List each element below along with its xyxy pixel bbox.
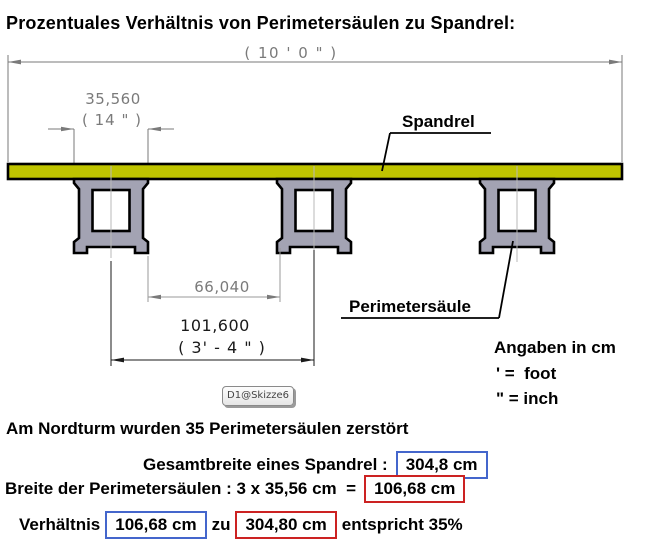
note-column-width-row: Breite der Perimetersäulen : 3 x 35,56 c… bbox=[5, 475, 465, 503]
dimension-spacing-imperial-text: ( 3' - 4 " ) bbox=[178, 338, 266, 357]
note-destroyed-columns: Am Nordturm wurden 35 Perimetersäulen ze… bbox=[6, 419, 408, 439]
column-width-value-box: 106,68 cm bbox=[364, 475, 465, 503]
dimension-overall-text: ( 10 ' 0 " ) bbox=[244, 44, 337, 62]
arrow-right-icon bbox=[61, 127, 74, 131]
spandrel-bar bbox=[8, 164, 622, 179]
ratio-suffix: entspricht 35% bbox=[342, 515, 463, 535]
note-ratio-row: Verhältnis 106,68 cm zu 304,80 cm entspr… bbox=[19, 511, 463, 539]
legend-foot: ' = foot bbox=[496, 364, 556, 384]
arrow-right-icon bbox=[609, 60, 622, 65]
dimension-spacing-text: 101,600 bbox=[180, 316, 250, 335]
sketch-dimension-tag: D1@Skizze6 bbox=[222, 386, 294, 406]
spandrel-column-drawing: ( 10 ' 0 " ) 35,560 ( 14 " ) bbox=[0, 0, 650, 380]
arrow-left-icon bbox=[148, 295, 161, 299]
ratio-mid: zu bbox=[212, 515, 231, 535]
technical-diagram-page: Prozentuales Verhältnis von Perimetersäu… bbox=[0, 0, 650, 548]
arrow-right-icon bbox=[267, 295, 280, 299]
spandrel-width-label: Gesamtbreite eines Spandrel : bbox=[143, 455, 388, 475]
dimension-gap-text: 66,040 bbox=[194, 278, 250, 296]
legend-inch: " = inch bbox=[496, 389, 558, 409]
column-centerlines bbox=[111, 166, 517, 262]
arrow-right-icon bbox=[301, 358, 314, 363]
ratio-value1-box: 106,68 cm bbox=[105, 511, 206, 539]
arrow-left-icon bbox=[111, 358, 124, 363]
arrow-left-icon bbox=[148, 127, 161, 131]
dimension-overall bbox=[8, 55, 622, 162]
dimension-column-width-text: 35,560 bbox=[85, 90, 141, 108]
dimension-column-width-imperial-text: ( 14 " ) bbox=[82, 111, 142, 129]
spandrel-label: Spandrel bbox=[402, 112, 475, 131]
column-width-label: Breite der Perimetersäulen : 3 x 35,56 c… bbox=[5, 479, 356, 499]
perimeter-column-label: Perimetersäule bbox=[349, 297, 471, 316]
ratio-value2-box: 304,80 cm bbox=[235, 511, 336, 539]
arrow-left-icon bbox=[8, 60, 21, 65]
ratio-prefix: Verhältnis bbox=[19, 515, 100, 535]
legend-units: Angaben in cm bbox=[494, 338, 616, 358]
